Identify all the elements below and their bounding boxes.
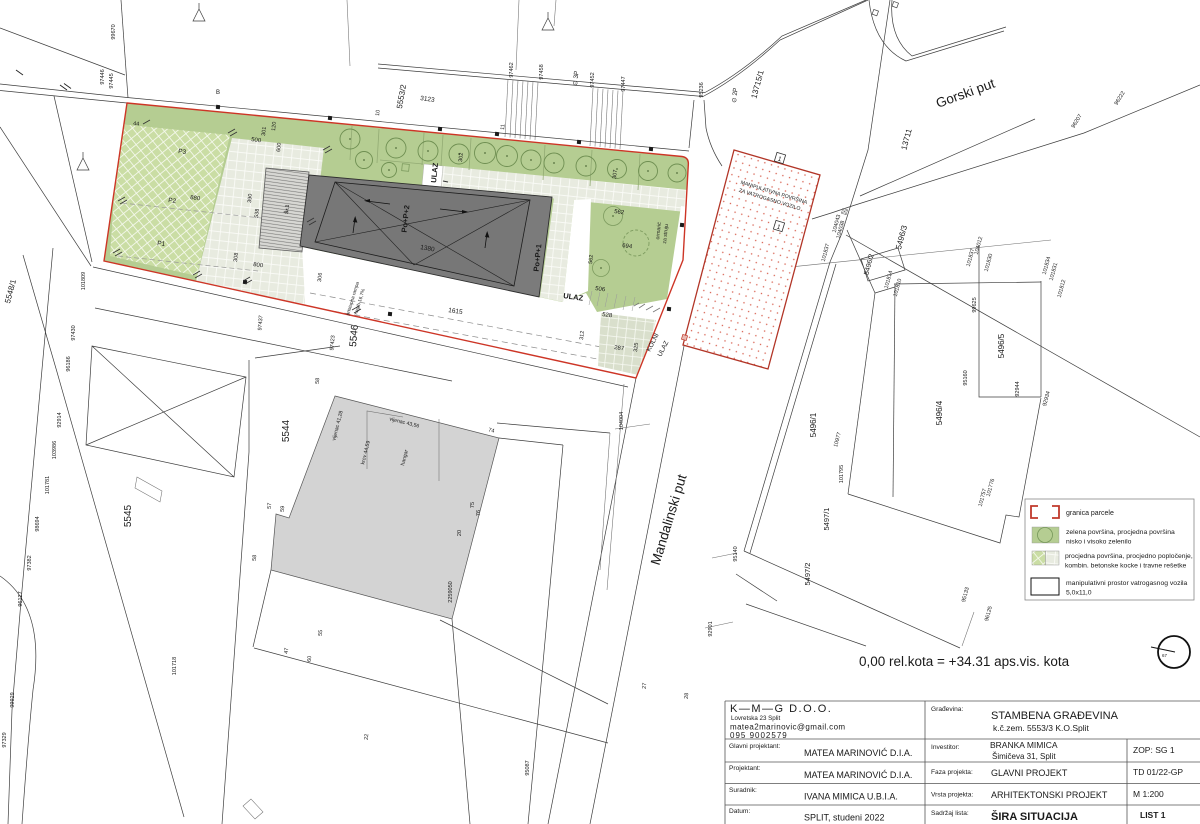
svg-text:120: 120 [271,121,278,131]
svg-text:k.č.zem. 5553/3 K.O.Split: k.č.zem. 5553/3 K.O.Split [993,723,1090,733]
svg-text:5497/2: 5497/2 [803,563,812,586]
svg-text:57: 57 [267,503,274,510]
svg-text:STAMBENA GRAĐEVINA: STAMBENA GRAĐEVINA [991,710,1119,722]
svg-text:44: 44 [133,121,140,128]
svg-text:Šimičeva 31, Split: Šimičeva 31, Split [992,752,1056,761]
svg-text:procjedna površina, procjedno: procjedna površina, procjedno popločenje… [1065,553,1193,560]
svg-text:59: 59 [280,506,287,513]
svg-text:0,00 rel.kota = +34.31 aps.vi: 0,00 rel.kota = +34.31 aps.vis. kota [859,654,1070,669]
svg-text:97458: 97458 [539,64,545,79]
svg-text:MATEA MARINOVIĆ D.I.A.: MATEA MARINOVIĆ D.I.A. [804,748,912,758]
svg-text:97447: 97447 [621,76,627,91]
svg-text:67: 67 [1162,653,1168,658]
svg-text:5496/1: 5496/1 [809,412,818,437]
svg-text:96186: 96186 [66,356,72,371]
svg-text:IVANA MIMICA U.B.I.A.: IVANA MIMICA U.B.I.A. [804,792,898,802]
svg-text:Glavni projektant:: Glavni projektant: [729,743,780,750]
svg-text:308: 308 [233,252,240,262]
svg-text:5,0x11,0: 5,0x11,0 [1066,590,1092,597]
svg-text:101809: 101809 [81,272,87,290]
svg-text:95236: 95236 [699,82,705,97]
svg-text:MATEA MARINOVIĆ D.I.A.: MATEA MARINOVIĆ D.I.A. [804,770,912,780]
svg-text:M 1:200: M 1:200 [1133,789,1164,799]
svg-text:95140: 95140 [733,546,739,561]
svg-text:97430: 97430 [71,325,77,340]
svg-text:58: 58 [252,555,259,562]
svg-text:ZOP: SG 1: ZOP: SG 1 [1133,745,1175,755]
svg-text:28: 28 [684,693,691,700]
svg-text:2259050: 2259050 [448,581,454,602]
svg-text:92914: 92914 [57,412,63,427]
svg-text:P1: P1 [157,240,166,248]
svg-text:Faza projekta:: Faza projekta: [931,769,973,776]
svg-text:SPLIT, studeni 2022: SPLIT, studeni 2022 [804,813,885,823]
svg-text:600: 600 [276,142,283,152]
svg-text:Lovretska 23 Split: Lovretska 23 Split [731,715,780,722]
svg-text:97452: 97452 [590,72,596,87]
svg-text:P2: P2 [168,197,177,205]
svg-text:granica parcele: granica parcele [1066,510,1114,517]
svg-text:K—M—G D.O.O.: K—M—G D.O.O. [730,703,832,715]
svg-text:47: 47 [284,648,291,655]
svg-text:99670: 99670 [111,24,117,39]
svg-text:98694: 98694 [35,516,41,531]
svg-text:5546: 5546 [348,324,361,348]
svg-text:11: 11 [500,124,507,130]
svg-text:Investitor:: Investitor: [931,744,960,751]
svg-text:ŠIRA SITUACIJA: ŠIRA SITUACIJA [991,810,1078,823]
svg-text:20: 20 [457,530,463,536]
svg-text:P3: P3 [178,148,187,156]
svg-text:99625: 99625 [972,297,978,312]
svg-text:TD 01/22-GP: TD 01/22-GP [1133,767,1183,777]
svg-text:nisko i visoko zelenilo: nisko i visoko zelenilo [1066,539,1132,546]
svg-text:92901: 92901 [708,621,714,636]
svg-text:75: 75 [470,502,476,508]
svg-text:5544: 5544 [281,419,292,442]
svg-text:95160: 95160 [963,370,969,385]
svg-text:58: 58 [315,378,322,385]
svg-text:BRANKA MIMICA: BRANKA MIMICA [990,740,1058,750]
svg-text:96127: 96127 [18,591,24,606]
svg-text:325: 325 [633,342,640,352]
svg-text:ARHITEKTONSKI PROJEKT: ARHITEKTONSKI PROJEKT [991,790,1108,800]
svg-text:97446: 97446 [100,69,106,84]
svg-text:101718: 101718 [172,657,178,675]
svg-text:10: 10 [375,109,382,116]
svg-text:5545: 5545 [123,504,134,527]
svg-text:97382: 97382 [27,555,33,570]
svg-text:Projektant:: Projektant: [729,765,761,772]
svg-text:97462: 97462 [509,62,515,77]
svg-text:390: 390 [247,193,254,203]
svg-text:301: 301 [261,126,268,136]
svg-text:5496/5: 5496/5 [997,333,1006,358]
svg-text:562: 562 [588,254,595,264]
svg-text:97329: 97329 [2,732,8,747]
svg-text:27: 27 [642,683,649,690]
svg-text:LIST 1: LIST 1 [1140,810,1166,820]
svg-text:302: 302 [458,152,465,162]
svg-text:22: 22 [364,734,371,741]
svg-text:60: 60 [307,656,314,663]
svg-text:GLAVNI PROJEKT: GLAVNI PROJEKT [991,768,1068,778]
svg-text:5497/1: 5497/1 [822,508,831,531]
svg-text:76: 76 [476,510,482,516]
svg-text:312: 312 [579,330,586,340]
svg-text:99929: 99929 [10,692,16,707]
svg-text:B: B [216,90,220,96]
svg-text:manipulativni prostor vatrogas: manipulativni prostor vatrogasnog vozila [1066,580,1187,587]
svg-text:101795: 101795 [839,465,845,483]
svg-text:104004: 104004 [619,412,625,430]
svg-text:538: 538 [254,208,261,218]
svg-text:5496/4: 5496/4 [935,400,944,425]
svg-text:Datum:: Datum: [729,808,750,815]
svg-text:kombin. betonske kocke i travn: kombin. betonske kocke i travne rešetke [1065,563,1186,570]
svg-text:307: 307 [612,169,619,179]
svg-text:Građevina:: Građevina: [931,706,963,713]
svg-text:Sadržaj lista:: Sadržaj lista: [931,810,969,817]
svg-text:101781: 101781 [45,476,51,494]
svg-text:Vrsta projekta:: Vrsta projekta: [931,792,973,799]
svg-text:55: 55 [318,630,325,637]
svg-text:zelena površina, procjedna pov: zelena površina, procjedna površina [1066,529,1175,536]
svg-text:306: 306 [317,272,324,282]
svg-text:97445: 97445 [109,73,115,88]
svg-text:103986: 103986 [52,441,58,459]
svg-text:Suradnik:: Suradnik: [729,787,757,794]
svg-text:095 9002579: 095 9002579 [730,731,788,740]
svg-text:95087: 95087 [525,760,531,775]
svg-text:92944: 92944 [1015,381,1021,396]
